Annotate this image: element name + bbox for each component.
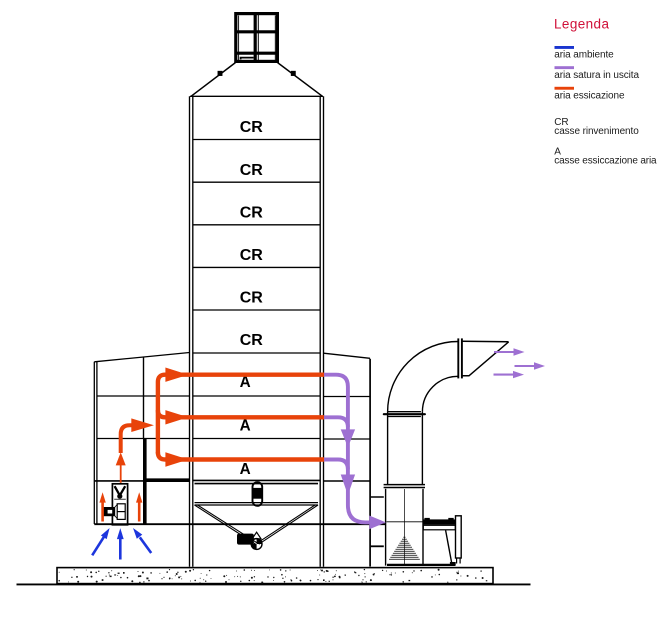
svg-text:CR: CR <box>240 290 264 307</box>
svg-text:aria satura in uscita: aria satura in uscita <box>554 70 639 81</box>
svg-text:A: A <box>240 418 251 435</box>
svg-text:CR: CR <box>240 162 264 179</box>
svg-text:CR: CR <box>240 247 264 264</box>
svg-text:A: A <box>240 461 251 478</box>
svg-text:casse essiccazione aria: casse essiccazione aria <box>554 156 657 167</box>
svg-text:CR: CR <box>240 332 264 349</box>
svg-text:aria essicazione: aria essicazione <box>554 91 625 102</box>
svg-text:casse rinvenimento: casse rinvenimento <box>554 126 639 137</box>
svg-text:aria ambiente: aria ambiente <box>554 50 614 61</box>
svg-text:CR: CR <box>240 119 264 136</box>
svg-text:CR: CR <box>240 204 264 221</box>
svg-text:Legenda: Legenda <box>554 17 609 32</box>
